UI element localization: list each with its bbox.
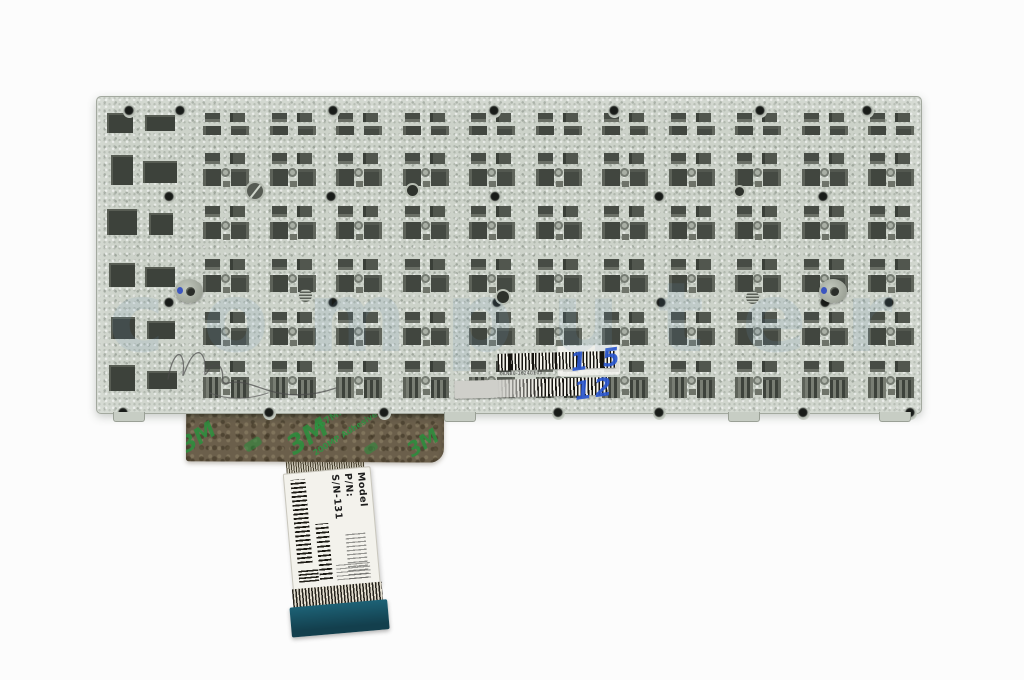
cutout-shape xyxy=(830,328,848,345)
cutout-hole xyxy=(487,221,496,230)
key-cutout-cluster xyxy=(802,206,848,248)
cutout-hole xyxy=(620,168,629,177)
cutout-shape xyxy=(829,361,844,372)
cutout-shape xyxy=(497,169,515,186)
cutout-shape xyxy=(671,113,686,122)
cutout-shape xyxy=(830,169,848,186)
cutout-blob xyxy=(111,317,135,339)
cutout-shape xyxy=(735,377,753,398)
cutout-shape xyxy=(336,275,354,292)
key-cutout-cluster xyxy=(203,113,249,137)
cutout-hole xyxy=(421,327,430,336)
cutout-shape xyxy=(403,222,421,239)
cutout-shape xyxy=(272,206,287,217)
cutout-shape xyxy=(223,234,230,240)
cutout-shape xyxy=(496,153,511,164)
screw-hole xyxy=(552,407,565,420)
cutout-hole xyxy=(753,327,762,336)
cutout-shape xyxy=(203,222,221,239)
cutout-shape xyxy=(423,181,430,187)
cutout-shape xyxy=(471,259,486,270)
cutout-hole xyxy=(288,168,297,177)
cutout-hole xyxy=(554,168,563,177)
cutout-shape xyxy=(203,169,221,186)
screw-hole xyxy=(608,105,621,118)
cutout-shape xyxy=(689,234,696,240)
cutout-shape xyxy=(364,222,382,239)
cutout-shape xyxy=(735,169,753,186)
cutout-shape xyxy=(669,377,687,398)
cutout-shape xyxy=(689,181,696,187)
cutout-shape xyxy=(763,126,781,135)
cutout-shape xyxy=(802,275,820,292)
key-cutout-cluster xyxy=(270,206,316,248)
cutout-shape xyxy=(669,275,687,292)
screw-hole xyxy=(123,105,136,118)
cutout-shape xyxy=(829,259,844,270)
cutout-shape xyxy=(802,169,820,186)
key-cutout-cluster xyxy=(602,259,648,301)
cutout-shape xyxy=(231,222,249,239)
cutout-blob xyxy=(109,365,135,391)
cutout-shape xyxy=(671,361,686,372)
cutout-shape xyxy=(430,153,445,164)
cutout-hole xyxy=(820,376,829,385)
cutout-hole xyxy=(687,274,696,283)
cutout-shape xyxy=(870,361,885,372)
key-cutout-cluster xyxy=(802,312,848,354)
cutout-shape xyxy=(356,181,363,187)
cutout-shape xyxy=(804,153,819,164)
cutout-shape xyxy=(363,312,378,323)
cutout-shape xyxy=(497,275,515,292)
crosshatch-hole xyxy=(299,289,312,302)
cutout-shape xyxy=(696,113,711,122)
cutout-shape xyxy=(669,126,687,135)
cutout-hole xyxy=(620,327,629,336)
cutout-shape xyxy=(469,126,487,135)
key-cutout-cluster xyxy=(203,259,249,301)
cutout-shape xyxy=(338,153,353,164)
cutout-shape xyxy=(538,113,553,122)
cutout-shape xyxy=(895,259,910,270)
key-cutout-cluster xyxy=(536,113,582,137)
cutout-shape xyxy=(205,153,220,164)
cutout-shape xyxy=(564,275,582,292)
cutout-shape xyxy=(689,389,696,395)
cutout-shape xyxy=(870,259,885,270)
cutout-shape xyxy=(888,181,895,187)
cable-label-text: Model P/N: S/N-131 xyxy=(328,471,376,580)
boss-hole xyxy=(830,287,839,296)
cutout-shape xyxy=(829,113,844,122)
cutout-shape xyxy=(403,377,421,398)
cutout-shape xyxy=(471,312,486,323)
cutout-shape xyxy=(735,275,753,292)
cutout-shape xyxy=(604,259,619,270)
cutout-shape xyxy=(696,206,711,217)
cutout-shape xyxy=(270,275,288,292)
cutout-hole xyxy=(620,221,629,230)
cutout-shape xyxy=(536,126,554,135)
key-cutout-cluster xyxy=(735,361,781,403)
cutout-shape xyxy=(270,126,288,135)
cutout-shape xyxy=(205,312,220,323)
mount-tab xyxy=(728,412,760,422)
cutout-shape xyxy=(830,377,848,398)
cutout-shape xyxy=(272,153,287,164)
cutout-shape xyxy=(671,153,686,164)
key-cutout-cluster xyxy=(536,153,582,195)
screw-hole xyxy=(263,407,276,420)
cutout-shape xyxy=(870,312,885,323)
key-cutout-cluster xyxy=(403,259,449,301)
cutout-hole xyxy=(820,327,829,336)
cutout-shape xyxy=(868,275,886,292)
cutout-shape xyxy=(696,153,711,164)
screw-hole xyxy=(655,297,668,310)
cutout-shape xyxy=(272,312,287,323)
hinge-boss-right xyxy=(819,279,847,303)
cutout-hole xyxy=(753,221,762,230)
cutout-shape xyxy=(223,181,230,187)
cutout-shape xyxy=(496,312,511,323)
cutout-shape xyxy=(405,206,420,217)
cutout-shape xyxy=(802,328,820,345)
cutout-shape xyxy=(364,275,382,292)
cutout-shape xyxy=(363,259,378,270)
key-cutout-cluster xyxy=(735,312,781,354)
cutout-hole xyxy=(487,274,496,283)
cutout-shape xyxy=(602,275,620,292)
cutout-shape xyxy=(629,153,644,164)
blue-paint-mark xyxy=(177,287,183,294)
cutout-blob xyxy=(145,115,175,131)
screw-hole xyxy=(653,407,666,420)
cutout-shape xyxy=(697,126,715,135)
cutout-shape xyxy=(564,126,582,135)
cutout-shape xyxy=(696,361,711,372)
cutout-shape xyxy=(538,206,553,217)
cutout-shape xyxy=(469,328,487,345)
cutout-shape xyxy=(364,169,382,186)
cutout-hole xyxy=(221,274,230,283)
cutout-shape xyxy=(270,169,288,186)
cutout-shape xyxy=(629,113,644,122)
cutout-shape xyxy=(822,340,829,346)
cutout-shape xyxy=(564,169,582,186)
cutout-hole xyxy=(753,168,762,177)
cutout-shape xyxy=(356,234,363,240)
key-cutout-cluster xyxy=(336,113,382,137)
cutout-shape xyxy=(888,389,895,395)
cutout-shape xyxy=(604,206,619,217)
cutout-shape xyxy=(423,340,430,346)
cutout-shape xyxy=(556,234,563,240)
tape-3m-logo-right: 3M xyxy=(402,423,443,461)
cutout-shape xyxy=(363,153,378,164)
cutout-shape xyxy=(697,328,715,345)
key-cutout-cluster xyxy=(403,113,449,137)
slotted-hole xyxy=(247,183,263,199)
cutout-shape xyxy=(471,153,486,164)
cutout-shape xyxy=(496,206,511,217)
cutout-shape xyxy=(297,206,312,217)
screw-hole xyxy=(327,297,340,310)
cutout-shape xyxy=(536,222,554,239)
adhesive-tape: 3M 3M 3M 467MP 200MP Adhesive xyxy=(186,411,444,462)
cutout-blob xyxy=(107,209,137,235)
cutout-shape xyxy=(403,126,421,135)
cutout-shape xyxy=(735,126,753,135)
cutout-shape xyxy=(896,222,914,239)
cutout-shape xyxy=(735,328,753,345)
cutout-shape xyxy=(829,312,844,323)
large-hole xyxy=(735,187,744,196)
cutout-shape xyxy=(298,126,316,135)
cutout-shape xyxy=(822,234,829,240)
cutout-shape xyxy=(829,153,844,164)
large-hole xyxy=(407,185,418,196)
key-cutout-cluster xyxy=(536,206,582,248)
product-photo: computer Model P/N: S/N-131 3M 3M 3M 467… xyxy=(0,0,1024,680)
screw-hole xyxy=(489,191,502,204)
cutout-shape xyxy=(763,222,781,239)
cutout-hole xyxy=(554,274,563,283)
cutout-shape xyxy=(669,328,687,345)
cutout-shape xyxy=(895,206,910,217)
cutout-shape xyxy=(762,259,777,270)
cutout-shape xyxy=(423,389,430,395)
tape-green-mark xyxy=(363,441,379,455)
cutout-shape xyxy=(604,312,619,323)
cutout-shape xyxy=(205,259,220,270)
cutout-shape xyxy=(297,113,312,122)
cutout-hole xyxy=(554,327,563,336)
signature-scribble xyxy=(150,335,370,405)
cutout-shape xyxy=(497,222,515,239)
cable-label-barcode-small xyxy=(298,568,319,583)
cutout-shape xyxy=(363,113,378,122)
cutout-shape xyxy=(423,234,430,240)
cutout-hole xyxy=(687,376,696,385)
cutout-shape xyxy=(629,206,644,217)
screw-hole xyxy=(754,105,767,118)
cutout-shape xyxy=(804,312,819,323)
key-cutout-cluster xyxy=(669,153,715,195)
cutout-shape xyxy=(430,206,445,217)
handwritten-mark: 1 5 12 xyxy=(569,338,656,406)
cutout-shape xyxy=(230,113,245,122)
cutout-shape xyxy=(231,126,249,135)
cutout-shape xyxy=(870,153,885,164)
cutout-shape xyxy=(896,169,914,186)
cutout-hole xyxy=(820,221,829,230)
cutout-hole xyxy=(421,221,430,230)
cutout-shape xyxy=(689,340,696,346)
cutout-shape xyxy=(895,113,910,122)
cutout-shape xyxy=(405,259,420,270)
cutout-shape xyxy=(735,222,753,239)
key-cutout-cluster xyxy=(536,259,582,301)
cutout-shape xyxy=(629,259,644,270)
cutout-shape xyxy=(338,113,353,122)
cutout-shape xyxy=(272,259,287,270)
cutout-shape xyxy=(696,312,711,323)
cutout-shape xyxy=(737,153,752,164)
cutout-shape xyxy=(536,328,554,345)
key-cutout-cluster xyxy=(270,153,316,195)
cutout-hole xyxy=(886,221,895,230)
cutout-shape xyxy=(689,287,696,293)
cutout-shape xyxy=(630,275,648,292)
cutout-shape xyxy=(431,328,449,345)
cutout-hole xyxy=(221,168,230,177)
screw-hole xyxy=(163,191,176,204)
cutout-shape xyxy=(622,287,629,293)
cutout-shape xyxy=(469,222,487,239)
cutout-blob xyxy=(149,213,173,235)
cutout-shape xyxy=(630,222,648,239)
cutout-shape xyxy=(888,287,895,293)
cutout-shape xyxy=(630,126,648,135)
cutout-shape xyxy=(471,206,486,217)
cutout-shape xyxy=(496,259,511,270)
cutout-shape xyxy=(272,113,287,122)
cutout-shape xyxy=(203,275,221,292)
cutout-shape xyxy=(563,113,578,122)
tape-green-mark xyxy=(243,436,263,453)
cutout-shape xyxy=(431,377,449,398)
large-hole xyxy=(497,291,509,303)
cutout-shape xyxy=(298,222,316,239)
cutout-shape xyxy=(896,377,914,398)
cutout-shape xyxy=(822,389,829,395)
cutout-shape xyxy=(403,328,421,345)
ribbon-cable: Model P/N: S/N-131 xyxy=(281,448,385,637)
cutout-shape xyxy=(497,126,515,135)
barcode-label: 0KNB0-3624GE00 1 5 12 xyxy=(483,344,649,402)
key-cutout-cluster xyxy=(868,113,914,137)
screw-hole xyxy=(163,297,176,310)
cutout-shape xyxy=(205,113,220,122)
cutout-shape xyxy=(868,126,886,135)
cutout-shape xyxy=(564,328,582,345)
cutout-shape xyxy=(896,126,914,135)
cutout-shape xyxy=(697,169,715,186)
screw-hole xyxy=(861,105,874,118)
cutout-shape xyxy=(489,287,496,293)
cutout-shape xyxy=(356,287,363,293)
cutout-hole xyxy=(288,221,297,230)
mount-tab xyxy=(879,412,911,422)
cutout-shape xyxy=(762,312,777,323)
cutout-shape xyxy=(231,275,249,292)
cutout-shape xyxy=(536,275,554,292)
cutout-shape xyxy=(338,259,353,270)
cutout-shape xyxy=(622,234,629,240)
cutout-shape xyxy=(602,126,620,135)
cutout-shape xyxy=(737,361,752,372)
cutout-shape xyxy=(737,206,752,217)
cutout-blob xyxy=(143,161,177,183)
cutout-shape xyxy=(763,328,781,345)
mount-tab xyxy=(113,412,145,422)
cutout-shape xyxy=(697,377,715,398)
cutout-hole xyxy=(354,274,363,283)
key-cutout-cluster xyxy=(469,206,515,248)
cutout-shape xyxy=(804,361,819,372)
cutout-shape xyxy=(671,206,686,217)
key-cutout-cluster xyxy=(868,361,914,403)
cutout-shape xyxy=(763,377,781,398)
cutout-shape xyxy=(763,275,781,292)
cutout-shape xyxy=(895,153,910,164)
key-cutout-cluster xyxy=(868,153,914,195)
key-cutout-cluster xyxy=(868,206,914,248)
cutout-shape xyxy=(671,312,686,323)
cutout-shape xyxy=(336,222,354,239)
cutout-shape xyxy=(804,206,819,217)
key-cutout-cluster xyxy=(403,206,449,248)
cutout-shape xyxy=(669,169,687,186)
cutout-shape xyxy=(297,259,312,270)
cutout-shape xyxy=(868,328,886,345)
cutout-shape xyxy=(602,222,620,239)
cutout-shape xyxy=(895,361,910,372)
cutout-shape xyxy=(737,113,752,122)
key-cutout-cluster xyxy=(735,206,781,248)
cutout-shape xyxy=(755,389,762,395)
cutout-blob xyxy=(111,155,133,185)
cutout-shape xyxy=(405,361,420,372)
screw-hole xyxy=(488,105,501,118)
cutout-shape xyxy=(230,206,245,217)
screw-hole xyxy=(797,407,810,420)
cutout-shape xyxy=(489,181,496,187)
key-cutout-cluster xyxy=(802,361,848,403)
cutout-shape xyxy=(489,340,496,346)
cutout-hole xyxy=(753,376,762,385)
cutout-shape xyxy=(804,113,819,122)
cutout-hole xyxy=(487,168,496,177)
cutout-shape xyxy=(556,181,563,187)
cutout-shape xyxy=(762,153,777,164)
cutout-shape xyxy=(431,126,449,135)
cutout-shape xyxy=(469,169,487,186)
cutout-shape xyxy=(604,153,619,164)
cutout-shape xyxy=(297,312,312,323)
cutout-blob xyxy=(145,267,175,287)
cutout-hole xyxy=(421,168,430,177)
cutout-hole xyxy=(753,274,762,283)
cutout-blob xyxy=(109,263,135,287)
cutout-shape xyxy=(802,222,820,239)
key-cutout-cluster xyxy=(469,153,515,195)
cutout-shape xyxy=(602,169,620,186)
cutout-shape xyxy=(563,259,578,270)
cutout-hole xyxy=(421,376,430,385)
cutout-shape xyxy=(870,206,885,217)
key-cutout-cluster xyxy=(203,153,249,195)
screw-hole xyxy=(174,105,187,118)
cutout-shape xyxy=(563,312,578,323)
hinge-boss-left xyxy=(175,279,203,303)
key-cutout-cluster xyxy=(868,259,914,301)
key-cutout-cluster xyxy=(403,361,449,403)
cutout-shape xyxy=(230,153,245,164)
blue-paint-mark xyxy=(821,287,827,294)
